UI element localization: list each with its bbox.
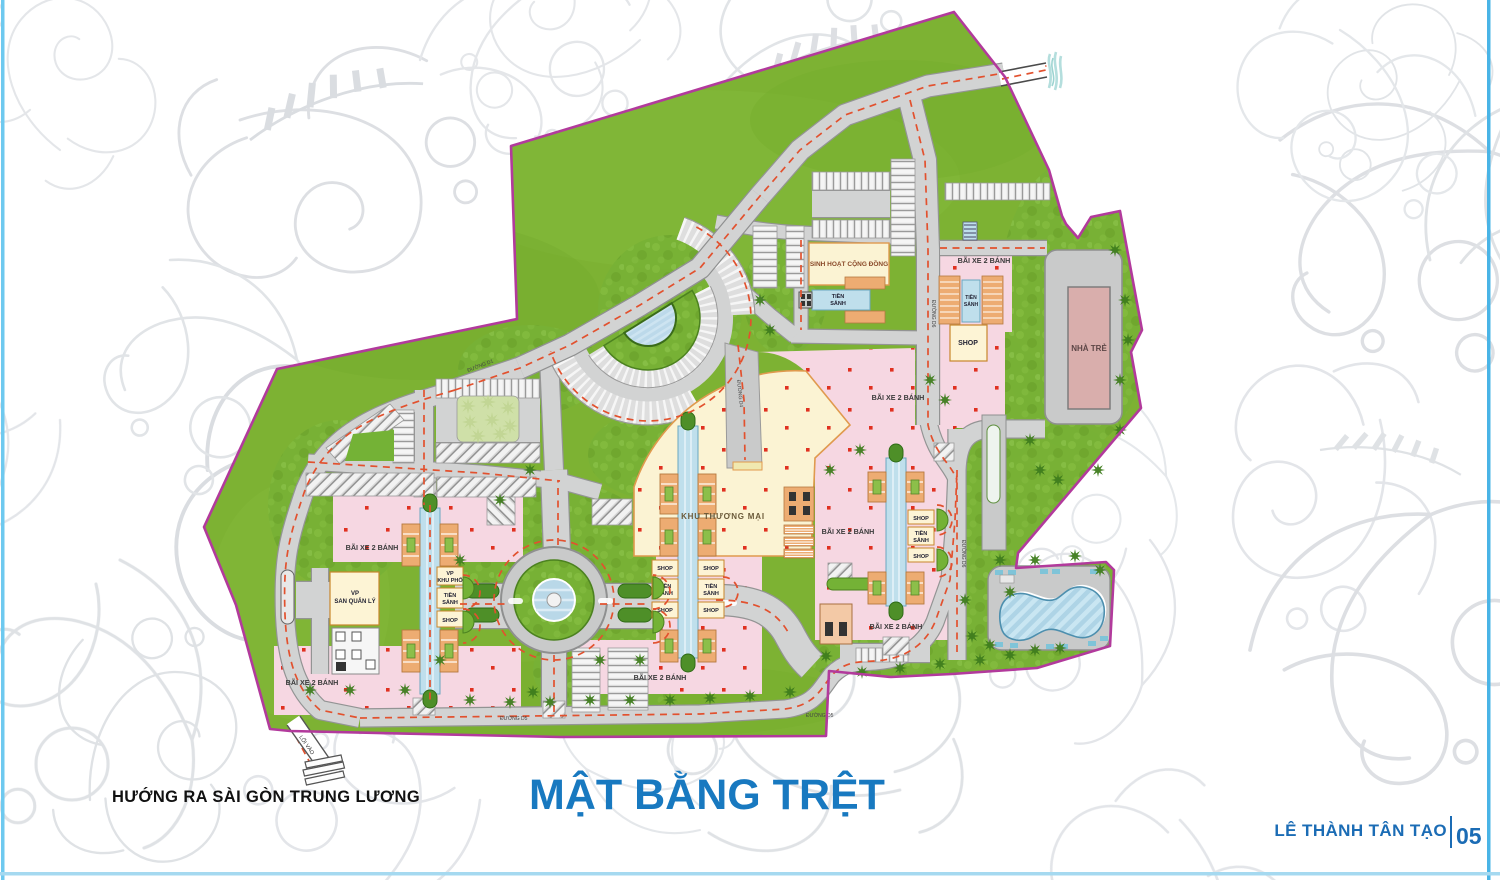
svg-text:HƯỚNG RA SÀI GÒN TRUNG LƯƠNG: HƯỚNG RA SÀI GÒN TRUNG LƯƠNG — [112, 787, 420, 806]
svg-text:BÃI XE 2 BÁNH: BÃI XE 2 BÁNH — [822, 527, 875, 536]
svg-text:VP: VP — [446, 571, 454, 577]
svg-text:BÃI XE 2 BÁNH: BÃI XE 2 BÁNH — [958, 256, 1011, 265]
svg-text:TIỀN: TIỀN — [705, 583, 718, 590]
svg-text:TIỀN: TIỀN — [915, 530, 928, 537]
svg-text:TIỀN: TIỀN — [965, 294, 977, 301]
svg-text:ĐƯỜNG D5: ĐƯỜNG D5 — [806, 712, 834, 719]
svg-text:SẢNH: SẢNH — [703, 590, 719, 597]
svg-text:SHOP: SHOP — [442, 618, 458, 624]
svg-text:05: 05 — [1456, 823, 1482, 849]
svg-text:BÃI XE 2 BÁNH: BÃI XE 2 BÁNH — [872, 393, 925, 402]
svg-text:SHOP: SHOP — [657, 566, 673, 572]
svg-text:SHOP: SHOP — [913, 516, 929, 522]
svg-text:SẢNH: SẢNH — [964, 301, 979, 308]
svg-text:SẢNH: SẢNH — [913, 537, 929, 544]
svg-text:KHU THƯƠNG MẠI: KHU THƯƠNG MẠI — [681, 512, 765, 521]
svg-text:BÃI XE 2 BÁNH: BÃI XE 2 BÁNH — [870, 622, 923, 631]
svg-text:TIỀN: TIỀN — [832, 293, 845, 300]
svg-text:MẬT BẰNG TRỆT: MẬT BẰNG TRỆT — [529, 770, 885, 819]
svg-text:VP: VP — [351, 591, 359, 597]
svg-text:SẢNH: SẢNH — [442, 599, 458, 606]
svg-text:BÃI XE 2 BÁNH: BÃI XE 2 BÁNH — [286, 678, 339, 687]
svg-text:SẢNH: SẢNH — [830, 300, 846, 307]
svg-text:ĐƯỜNG D6: ĐƯỜNG D6 — [930, 300, 937, 328]
svg-text:NHÀ TRẺ: NHÀ TRẺ — [1071, 344, 1107, 353]
svg-text:SHOP: SHOP — [913, 554, 929, 560]
svg-text:SHOP: SHOP — [703, 608, 719, 614]
svg-text:ĐƯỜNG D6: ĐƯỜNG D6 — [960, 540, 967, 568]
svg-text:LÊ THÀNH TÂN TẠO: LÊ THÀNH TÂN TẠO — [1274, 821, 1447, 840]
svg-text:BÃI XE 2 BÁNH: BÃI XE 2 BÁNH — [634, 673, 687, 682]
svg-text:SHOP: SHOP — [703, 566, 719, 572]
svg-text:KHU PHỐ: KHU PHỐ — [437, 577, 463, 584]
svg-text:BÃI XE 2 BÁNH: BÃI XE 2 BÁNH — [346, 543, 399, 552]
svg-text:TIỀN: TIỀN — [444, 592, 457, 599]
svg-text:SAN QUẢN LÝ: SAN QUẢN LÝ — [334, 598, 375, 605]
svg-text:SHOP: SHOP — [958, 340, 978, 347]
svg-text:ĐƯỜNG D5: ĐƯỜNG D5 — [500, 715, 528, 722]
